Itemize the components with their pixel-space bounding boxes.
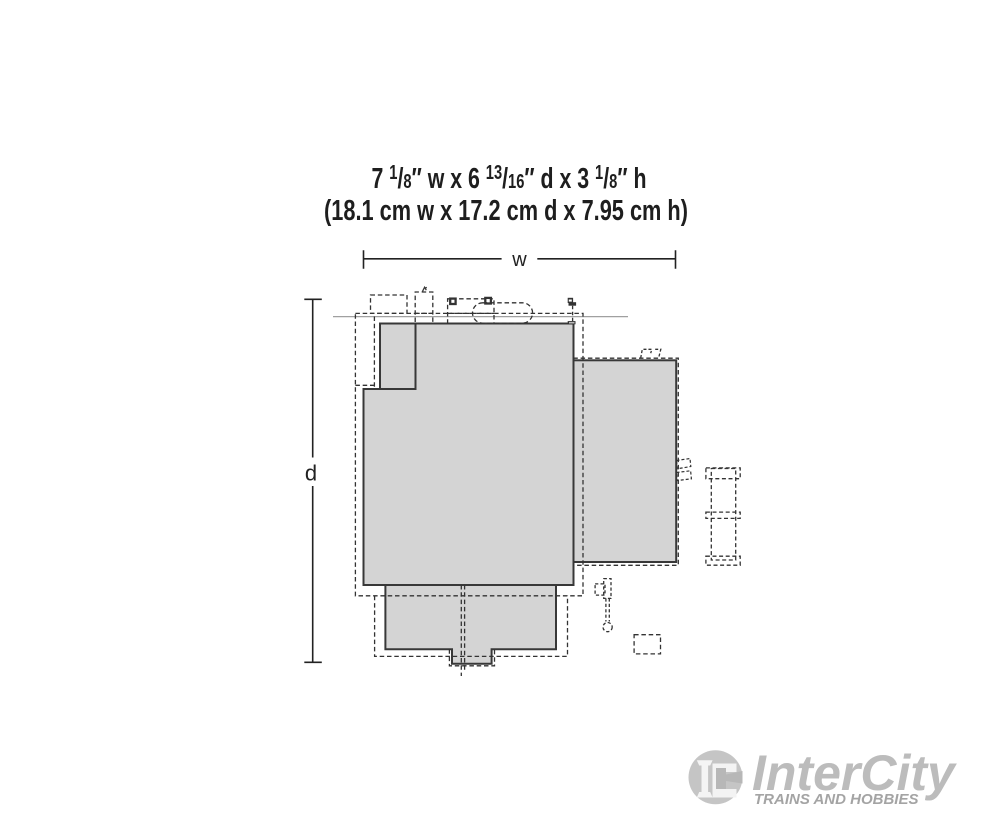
svg-text:d: d bbox=[305, 461, 317, 486]
svg-text:w: w bbox=[511, 249, 527, 271]
svg-text:TRAINS AND HOBBIES: TRAINS AND HOBBIES bbox=[754, 791, 918, 808]
